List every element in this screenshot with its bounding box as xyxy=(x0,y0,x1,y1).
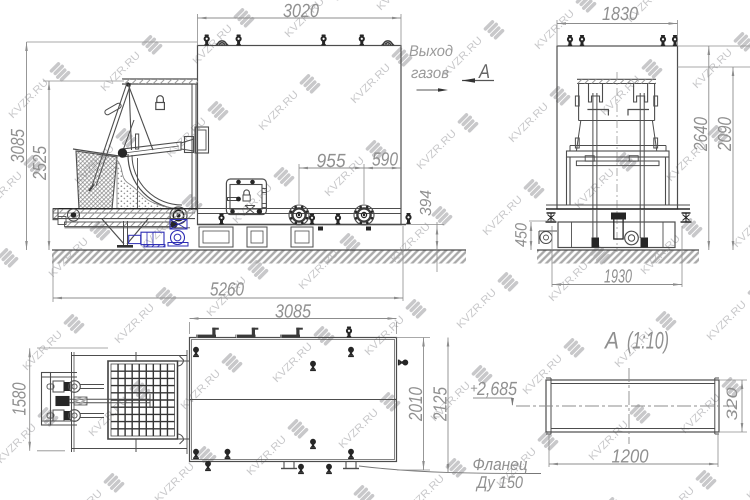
svg-text:Ду 150: Ду 150 xyxy=(475,473,523,492)
svg-text:2640: 2640 xyxy=(691,117,712,152)
svg-text:2125: 2125 xyxy=(431,387,452,422)
svg-text:5260: 5260 xyxy=(210,280,244,301)
svg-text:2525: 2525 xyxy=(30,146,51,181)
svg-text:2,685: 2,685 xyxy=(476,379,517,400)
svg-text:2010: 2010 xyxy=(406,387,427,422)
svg-text:3020: 3020 xyxy=(283,1,319,22)
svg-text:А: А xyxy=(478,61,490,83)
svg-text:955: 955 xyxy=(317,151,346,172)
svg-text:394: 394 xyxy=(418,190,435,216)
svg-text:(1:10): (1:10) xyxy=(627,328,669,355)
svg-text:1200: 1200 xyxy=(612,447,649,468)
svg-text:1830: 1830 xyxy=(602,4,638,25)
svg-text:Выход: Выход xyxy=(409,43,453,60)
svg-text:газов: газов xyxy=(411,65,449,82)
svg-text:3085: 3085 xyxy=(8,129,29,163)
svg-text:1580: 1580 xyxy=(10,382,31,415)
svg-text:А: А xyxy=(603,328,619,355)
svg-text:320: 320 xyxy=(724,387,741,421)
svg-text:2090: 2090 xyxy=(715,117,736,152)
svg-text:Фланец: Фланец xyxy=(473,455,528,474)
svg-text:590: 590 xyxy=(372,150,398,171)
svg-text:1930: 1930 xyxy=(604,267,632,288)
svg-text:450: 450 xyxy=(513,222,531,247)
svg-text:3085: 3085 xyxy=(275,301,311,322)
